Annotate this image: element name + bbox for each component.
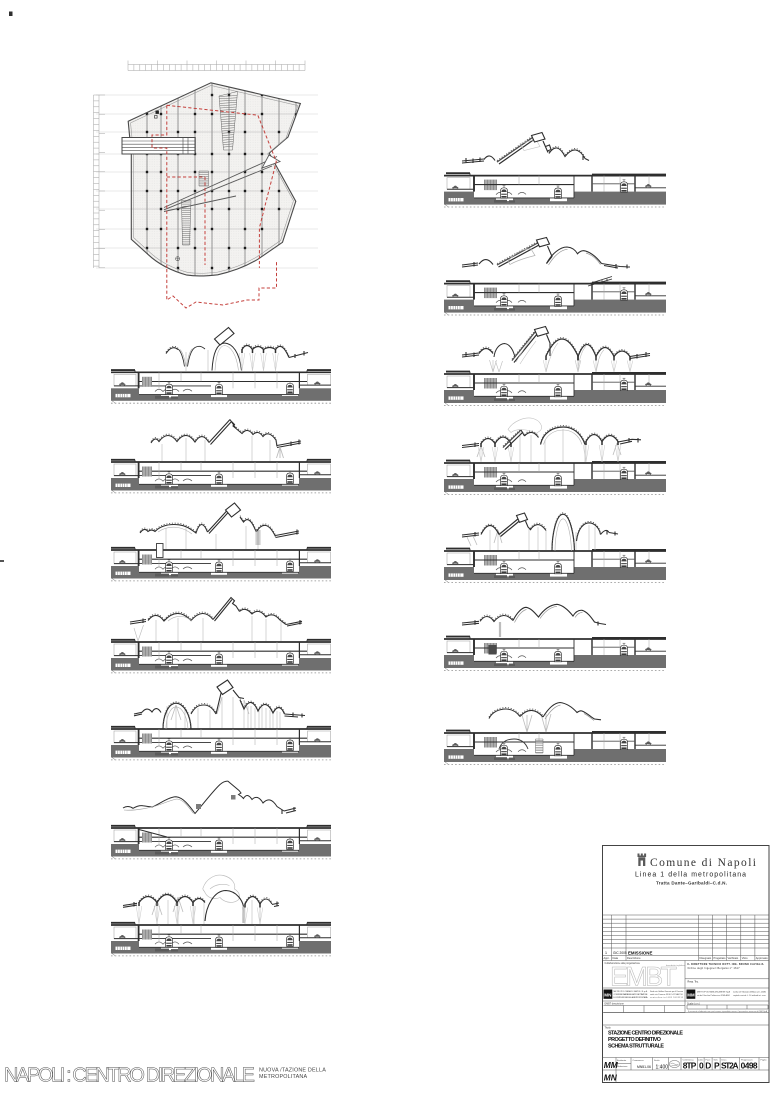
svg-text:EMBT descrizione: EMBT descrizione bbox=[605, 1002, 625, 1005]
svg-text:Approvato: Approvato bbox=[756, 956, 768, 960]
svg-text:1: 1 bbox=[605, 951, 607, 955]
svg-text:Verificato: Verificato bbox=[728, 956, 739, 960]
svg-text:sede via Duomo 48 80 142 NAPOL: sede via Duomo 48 80 142 NAPOLI bbox=[650, 993, 683, 996]
svg-text:SCHEMA STRUTTURALE: SCHEMA STRUTTURALE bbox=[608, 1044, 664, 1050]
svg-text:MN: MN bbox=[604, 993, 612, 998]
svg-text:NAPOLI : CENTRO DIREZIONALE: NAPOLI : CENTRO DIREZIONALE bbox=[4, 1065, 256, 1087]
svg-text:CONCESSIONARIA DELLA PROGETTAZ: CONCESSIONARIA DELLA PROGETTAZIONE bbox=[614, 993, 649, 996]
svg-text:Foglio: Foglio bbox=[761, 1060, 768, 1062]
svg-text:Data: Data bbox=[613, 956, 619, 960]
svg-text:Ordine degli Ingegneri Bergamo: Ordine degli Ingegneri Bergamo n° 1617 bbox=[688, 967, 741, 970]
svg-text:GIC 2005: GIC 2005 bbox=[613, 951, 627, 955]
svg-text:P: P bbox=[714, 1061, 720, 1071]
svg-text:1:400: 1:400 bbox=[656, 1064, 669, 1070]
svg-text:Resp. Tec.: Resp. Tec. bbox=[688, 980, 700, 983]
svg-text:Il presente elaborato non può: Il presente elaborato non può essere rip… bbox=[688, 1010, 768, 1013]
svg-text:E COSTRUZIONE DELLA METROPOLIT: E COSTRUZIONE DELLA METROPOLITANA bbox=[614, 996, 649, 999]
svg-text:0498: 0498 bbox=[741, 1061, 758, 1071]
svg-text:0: 0 bbox=[699, 1061, 704, 1071]
svg-text:EMBT: EMBT bbox=[610, 962, 680, 992]
svg-text:STAZIONE CENTRO DIREZIONALE: STAZIONE CENTRO DIREZIONALE bbox=[608, 1031, 683, 1037]
svg-text:Appr.: Appr. bbox=[604, 956, 610, 960]
svg-text:EMISSIONE: EMISSIONE bbox=[628, 950, 652, 955]
svg-text:centralino tel 081 5531111: centralino tel 081 5531111 bbox=[650, 996, 684, 999]
svg-text:Tratta Dante–Garibaldi–C.d.N.: Tratta Dante–Garibaldi–C.d.N. bbox=[656, 880, 727, 885]
svg-text:Visto: Visto bbox=[742, 956, 748, 960]
svg-text:Linea 1 della metropolitana: Linea 1 della metropolitana bbox=[635, 872, 746, 879]
svg-text:Emittente: Emittente bbox=[617, 1059, 627, 1062]
svg-text:MN51-06: MN51-06 bbox=[637, 1065, 651, 1069]
svg-text:PROGETTO DEFINITIVO: PROGETTO DEFINITIVO bbox=[608, 1037, 661, 1043]
svg-text:METROPOLITANA: METROPOLITANA bbox=[259, 1074, 308, 1080]
svg-text:Disegnato: Disegnato bbox=[700, 956, 712, 960]
svg-text:Redazione: Redazione bbox=[617, 1066, 628, 1068]
svg-text:IL DIRETTORE TECNICO DOTT. ING: IL DIRETTORE TECNICO DOTT. ING. BRUNO CA… bbox=[688, 963, 764, 966]
svg-text:via del Vecchio Politecnico 8: via del Vecchio Politecnico 8 MILANO bbox=[697, 994, 730, 997]
svg-text:Sede via Galileo Ferraris per: Sede via Galileo Ferraris per il Duomo bbox=[650, 991, 684, 993]
svg-text:ST2A: ST2A bbox=[721, 1061, 739, 1071]
svg-text:NUOVA /TAZIONE DELLA: NUOVA /TAZIONE DELLA bbox=[259, 1068, 326, 1074]
svg-text:D: D bbox=[705, 1061, 711, 1071]
svg-text:Progettato: Progettato bbox=[714, 956, 727, 960]
svg-text:MN: MN bbox=[604, 1072, 618, 1082]
svg-text:MM: MM bbox=[687, 993, 695, 998]
svg-text:Comune di Napoli: Comune di Napoli bbox=[650, 857, 756, 869]
svg-text:iscritta nel Tribunale di Mila: iscritta nel Tribunale di Milano al n. 2… bbox=[733, 990, 767, 993]
svg-text:Scala: Scala bbox=[654, 1060, 660, 1062]
svg-text:METROPOLITANA MILANESE SpA: METROPOLITANA MILANESE SpA bbox=[697, 990, 731, 993]
svg-text:8TP: 8TP bbox=[683, 1061, 697, 1071]
svg-text:METROPOLITANA DI NAPOLI S.p.A.: METROPOLITANA DI NAPOLI S.p.A. bbox=[614, 990, 648, 993]
svg-text:Commessa: Commessa bbox=[633, 1060, 645, 1062]
svg-text:Descrizione: Descrizione bbox=[627, 956, 641, 960]
svg-text:Titolo: Titolo bbox=[605, 1025, 612, 1029]
svg-text:capitale sociale L. 50 miliard: capitale sociale L. 50 miliardi int. ver… bbox=[733, 994, 766, 997]
